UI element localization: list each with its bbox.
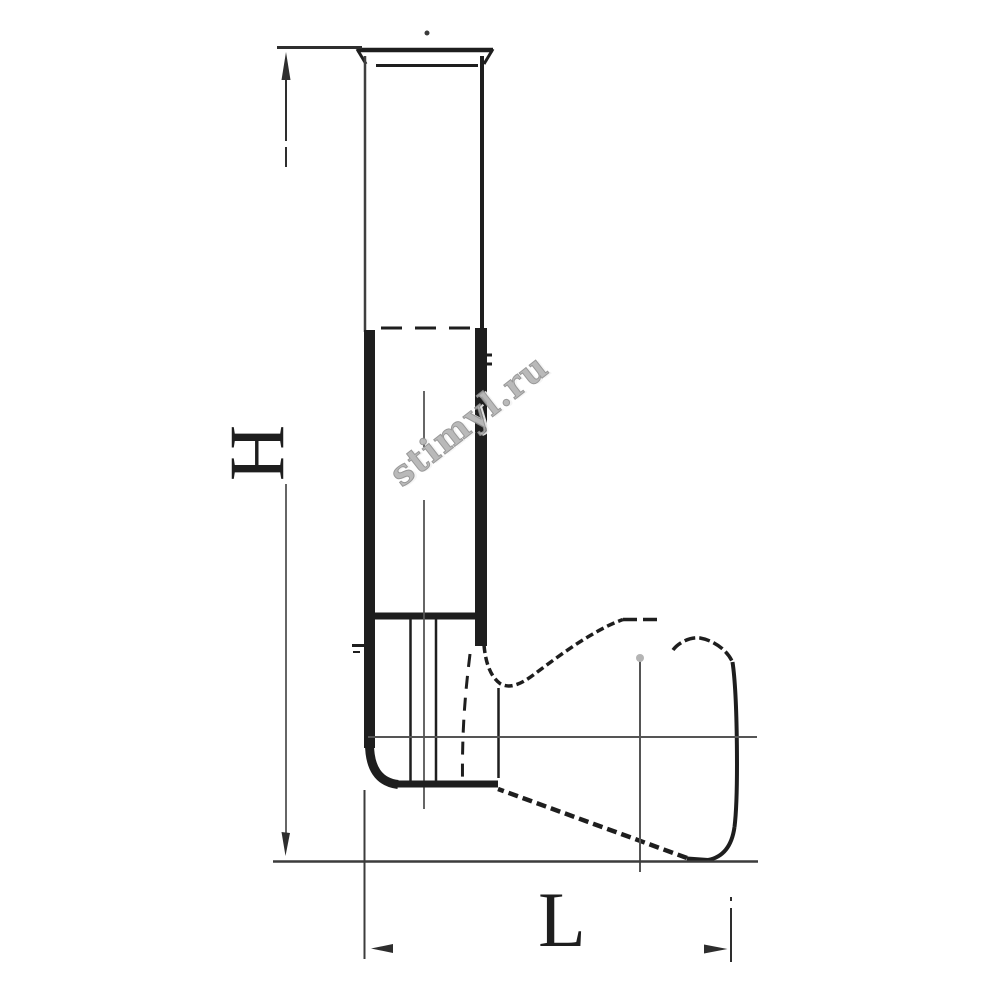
dimension-length: L [365,790,732,963]
bulb-bottom-flat [687,859,708,861]
technical-drawing-canvas: stimyl.ru stimyl.ru H L [0,0,1000,1000]
bulb-right-edge [733,662,737,827]
l-arrowhead-right [704,945,728,954]
watermark: stimyl.ru stimyl.ru [382,345,559,497]
bulb-saddle-curve [484,620,623,686]
ground-joint-section [352,328,492,748]
h-arrowhead-down [282,832,291,856]
glassware-technical-drawing: stimyl.ru stimyl.ru H L [0,0,1000,1000]
bulb-axis-top-dot [636,654,644,662]
cone-bottom-diagonal [498,789,687,858]
tube-neck [357,31,493,333]
dimension-label-h: H [213,425,300,481]
watermark-text: stimyl.ru [382,346,556,495]
side-bulb-vessel [368,620,757,873]
bulb-mouth-right-curve [673,638,733,662]
bottom-left-corner-arc [369,742,398,785]
h-arrowhead-up [282,52,291,80]
hidden-inner-dashed-curve [462,654,470,780]
scan-dot-artifact [425,31,430,36]
bulb-bottom-right-corner [708,827,735,860]
l-arrowhead-left [371,944,393,953]
dimension-label-l: L [538,876,586,963]
tube-bottom [369,742,498,785]
